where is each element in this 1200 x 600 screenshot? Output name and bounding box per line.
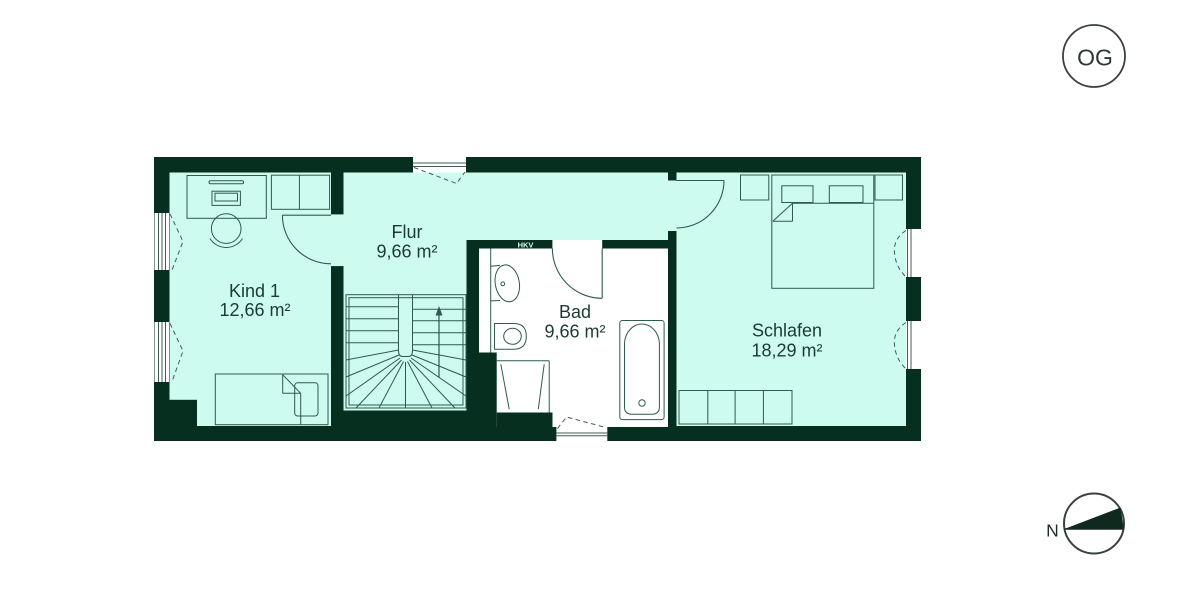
svg-text:Kind 1: Kind 1 — [229, 281, 280, 301]
svg-text:Schlafen: Schlafen — [752, 321, 822, 341]
svg-text:HKV: HKV — [518, 240, 534, 249]
svg-text:Flur: Flur — [392, 222, 423, 242]
svg-text:OG: OG — [1077, 45, 1113, 71]
svg-text:9,66 m²: 9,66 m² — [376, 242, 437, 262]
svg-text:N: N — [1046, 521, 1059, 541]
svg-text:Bad: Bad — [559, 302, 591, 322]
svg-text:18,29 m²: 18,29 m² — [751, 341, 822, 361]
svg-text:12,66 m²: 12,66 m² — [219, 300, 290, 320]
svg-text:9,66 m²: 9,66 m² — [544, 322, 605, 342]
